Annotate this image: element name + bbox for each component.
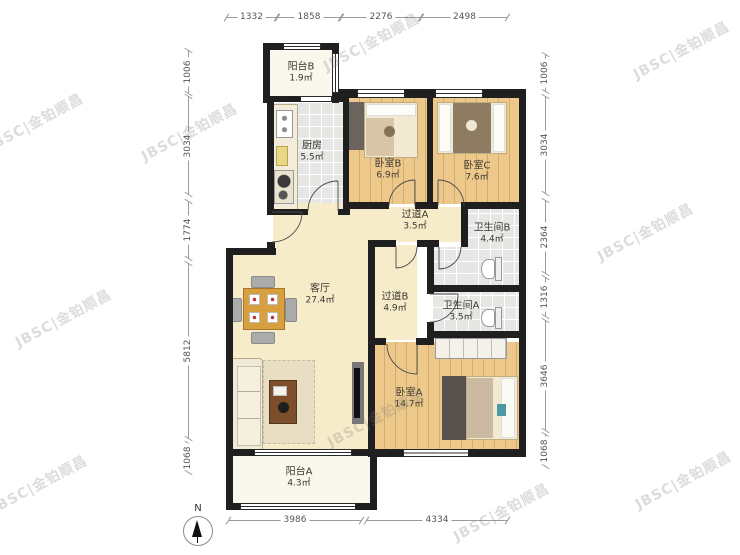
dim-left-3: 1774 xyxy=(181,201,195,259)
room-area: 3.5㎡ xyxy=(443,313,480,324)
dim-value: 1316 xyxy=(540,283,550,312)
room-name: 厨房 xyxy=(300,141,323,153)
room-name: 过道B xyxy=(382,292,409,304)
room-area: 1.9㎡ xyxy=(288,74,315,85)
dim-value: 2276 xyxy=(367,12,396,22)
room-name: 卧室B xyxy=(375,159,402,171)
door-arc xyxy=(438,180,464,206)
room-area: 4.3㎡ xyxy=(286,479,313,490)
room-name: 客厅 xyxy=(305,284,334,296)
room-label-balcony-a: 阳台A4.3㎡ xyxy=(286,467,313,490)
room-area: 7.6㎡ xyxy=(464,173,491,184)
compass-stem-icon xyxy=(197,536,198,543)
room-area: 4.4㎡ xyxy=(474,235,511,246)
room-area: 27.4㎡ xyxy=(305,296,334,307)
north-label: N xyxy=(182,503,214,515)
door-arc xyxy=(387,344,417,374)
dim-left-4: 5812 xyxy=(181,263,195,439)
dim-left-2: 3034 xyxy=(181,96,195,195)
dim-value: 1332 xyxy=(237,12,266,22)
dim-value: 1068 xyxy=(183,444,193,473)
room-label-living: 客厅27.4㎡ xyxy=(305,284,334,307)
dim-value: 3034 xyxy=(540,131,550,160)
door-arc xyxy=(272,212,302,242)
room-name: 卫生间B xyxy=(474,223,511,235)
dim-value: 1858 xyxy=(295,12,324,22)
dim-right-5: 3646 xyxy=(538,320,552,431)
dim-value: 3646 xyxy=(540,361,550,390)
room-label-kitchen: 厨房5.5㎡ xyxy=(300,141,323,164)
room-area: 5.5㎡ xyxy=(300,153,323,164)
dim-top-1: 1332 xyxy=(226,10,277,24)
dim-right-6: 1068 xyxy=(538,434,552,467)
room-area: 3.5㎡ xyxy=(402,222,429,233)
dim-value: 2364 xyxy=(540,223,550,252)
room-name: 阳台B xyxy=(288,62,315,74)
room-area: 14.7㎡ xyxy=(394,400,423,411)
dim-value: 4334 xyxy=(423,515,452,525)
room-label-corridor-b: 过道B4.9㎡ xyxy=(382,292,409,315)
door-arc xyxy=(389,180,415,206)
room-label-bedroom-a: 卧室A14.7㎡ xyxy=(394,388,423,411)
dim-top-2: 1858 xyxy=(277,10,341,24)
room-name: 卧室A xyxy=(394,388,423,400)
dim-bottom-2: 4334 xyxy=(366,513,508,527)
room-area: 6.9㎡ xyxy=(375,171,402,182)
room-name: 过道A xyxy=(402,210,429,222)
room-area: 4.9㎡ xyxy=(382,304,409,315)
dim-right-2: 3034 xyxy=(538,96,552,194)
room-name: 卫生间A xyxy=(443,301,480,313)
room-label-bedroom-b: 卧室B6.9㎡ xyxy=(375,159,402,182)
dim-right-3: 2364 xyxy=(538,200,552,274)
dim-left-1: 1006 xyxy=(181,50,195,94)
compass-needle-icon xyxy=(192,520,202,537)
dim-bottom-1: 3986 xyxy=(228,513,362,527)
door-arcs xyxy=(0,0,740,555)
dim-value: 3034 xyxy=(183,131,193,160)
dim-right-4: 1316 xyxy=(538,277,552,317)
dim-right-1: 1006 xyxy=(538,54,552,92)
room-label-corridor-a: 过道A3.5㎡ xyxy=(402,210,429,233)
dim-value: 3986 xyxy=(281,515,310,525)
dim-value: 1774 xyxy=(183,216,193,245)
dim-value: 2498 xyxy=(450,12,479,22)
dim-left-5: 1068 xyxy=(181,443,195,473)
dim-top-4: 2498 xyxy=(421,10,508,24)
door-arc xyxy=(308,181,338,211)
dim-top-3: 2276 xyxy=(341,10,421,24)
room-label-balcony-b: 阳台B1.9㎡ xyxy=(288,62,315,85)
room-label-bath-a: 卫生间A3.5㎡ xyxy=(443,301,480,324)
door-arc xyxy=(439,247,461,269)
room-label-bedroom-c: 卧室C7.6㎡ xyxy=(464,161,491,184)
room-name: 阳台A xyxy=(286,467,313,479)
dim-value: 1006 xyxy=(540,59,550,88)
dim-value: 1006 xyxy=(183,58,193,87)
room-label-bath-b: 卫生间B4.4㎡ xyxy=(474,223,511,246)
north-compass: N xyxy=(182,503,214,553)
dim-value: 1068 xyxy=(540,436,550,465)
floor-plan: 阳台B1.9㎡ 厨房5.5㎡ 卧室B6.9㎡ 卧室C7.6㎡ 过道A3.5㎡ 卫… xyxy=(0,0,740,555)
door-arc xyxy=(396,247,417,268)
dim-value: 5812 xyxy=(183,337,193,366)
room-name: 卧室C xyxy=(464,161,491,173)
